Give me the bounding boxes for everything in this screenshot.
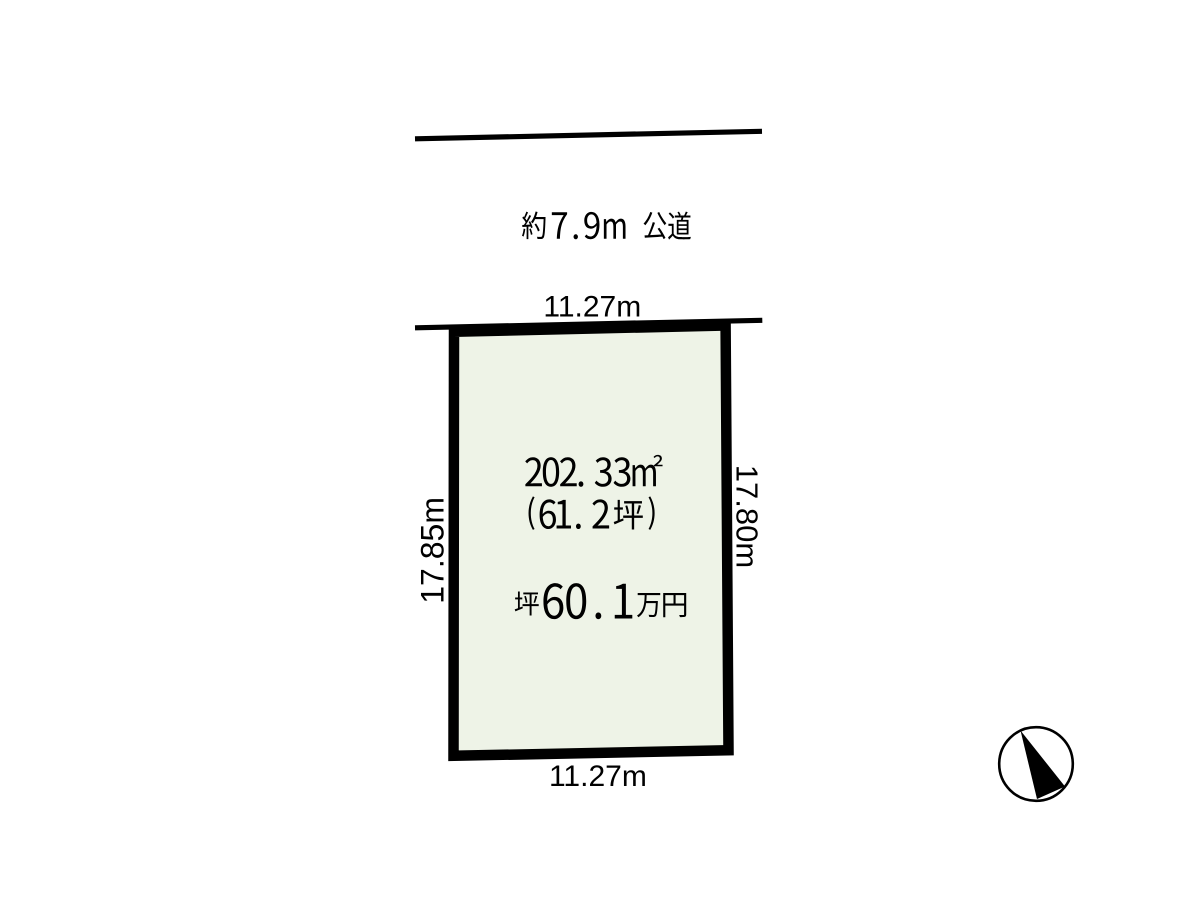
svg-text:17.80m: 17.80m xyxy=(729,465,764,568)
svg-text:17.85m: 17.85m xyxy=(414,497,450,604)
svg-text:11.27m: 11.27m xyxy=(549,760,647,793)
svg-text:11.27m: 11.27m xyxy=(543,291,641,324)
